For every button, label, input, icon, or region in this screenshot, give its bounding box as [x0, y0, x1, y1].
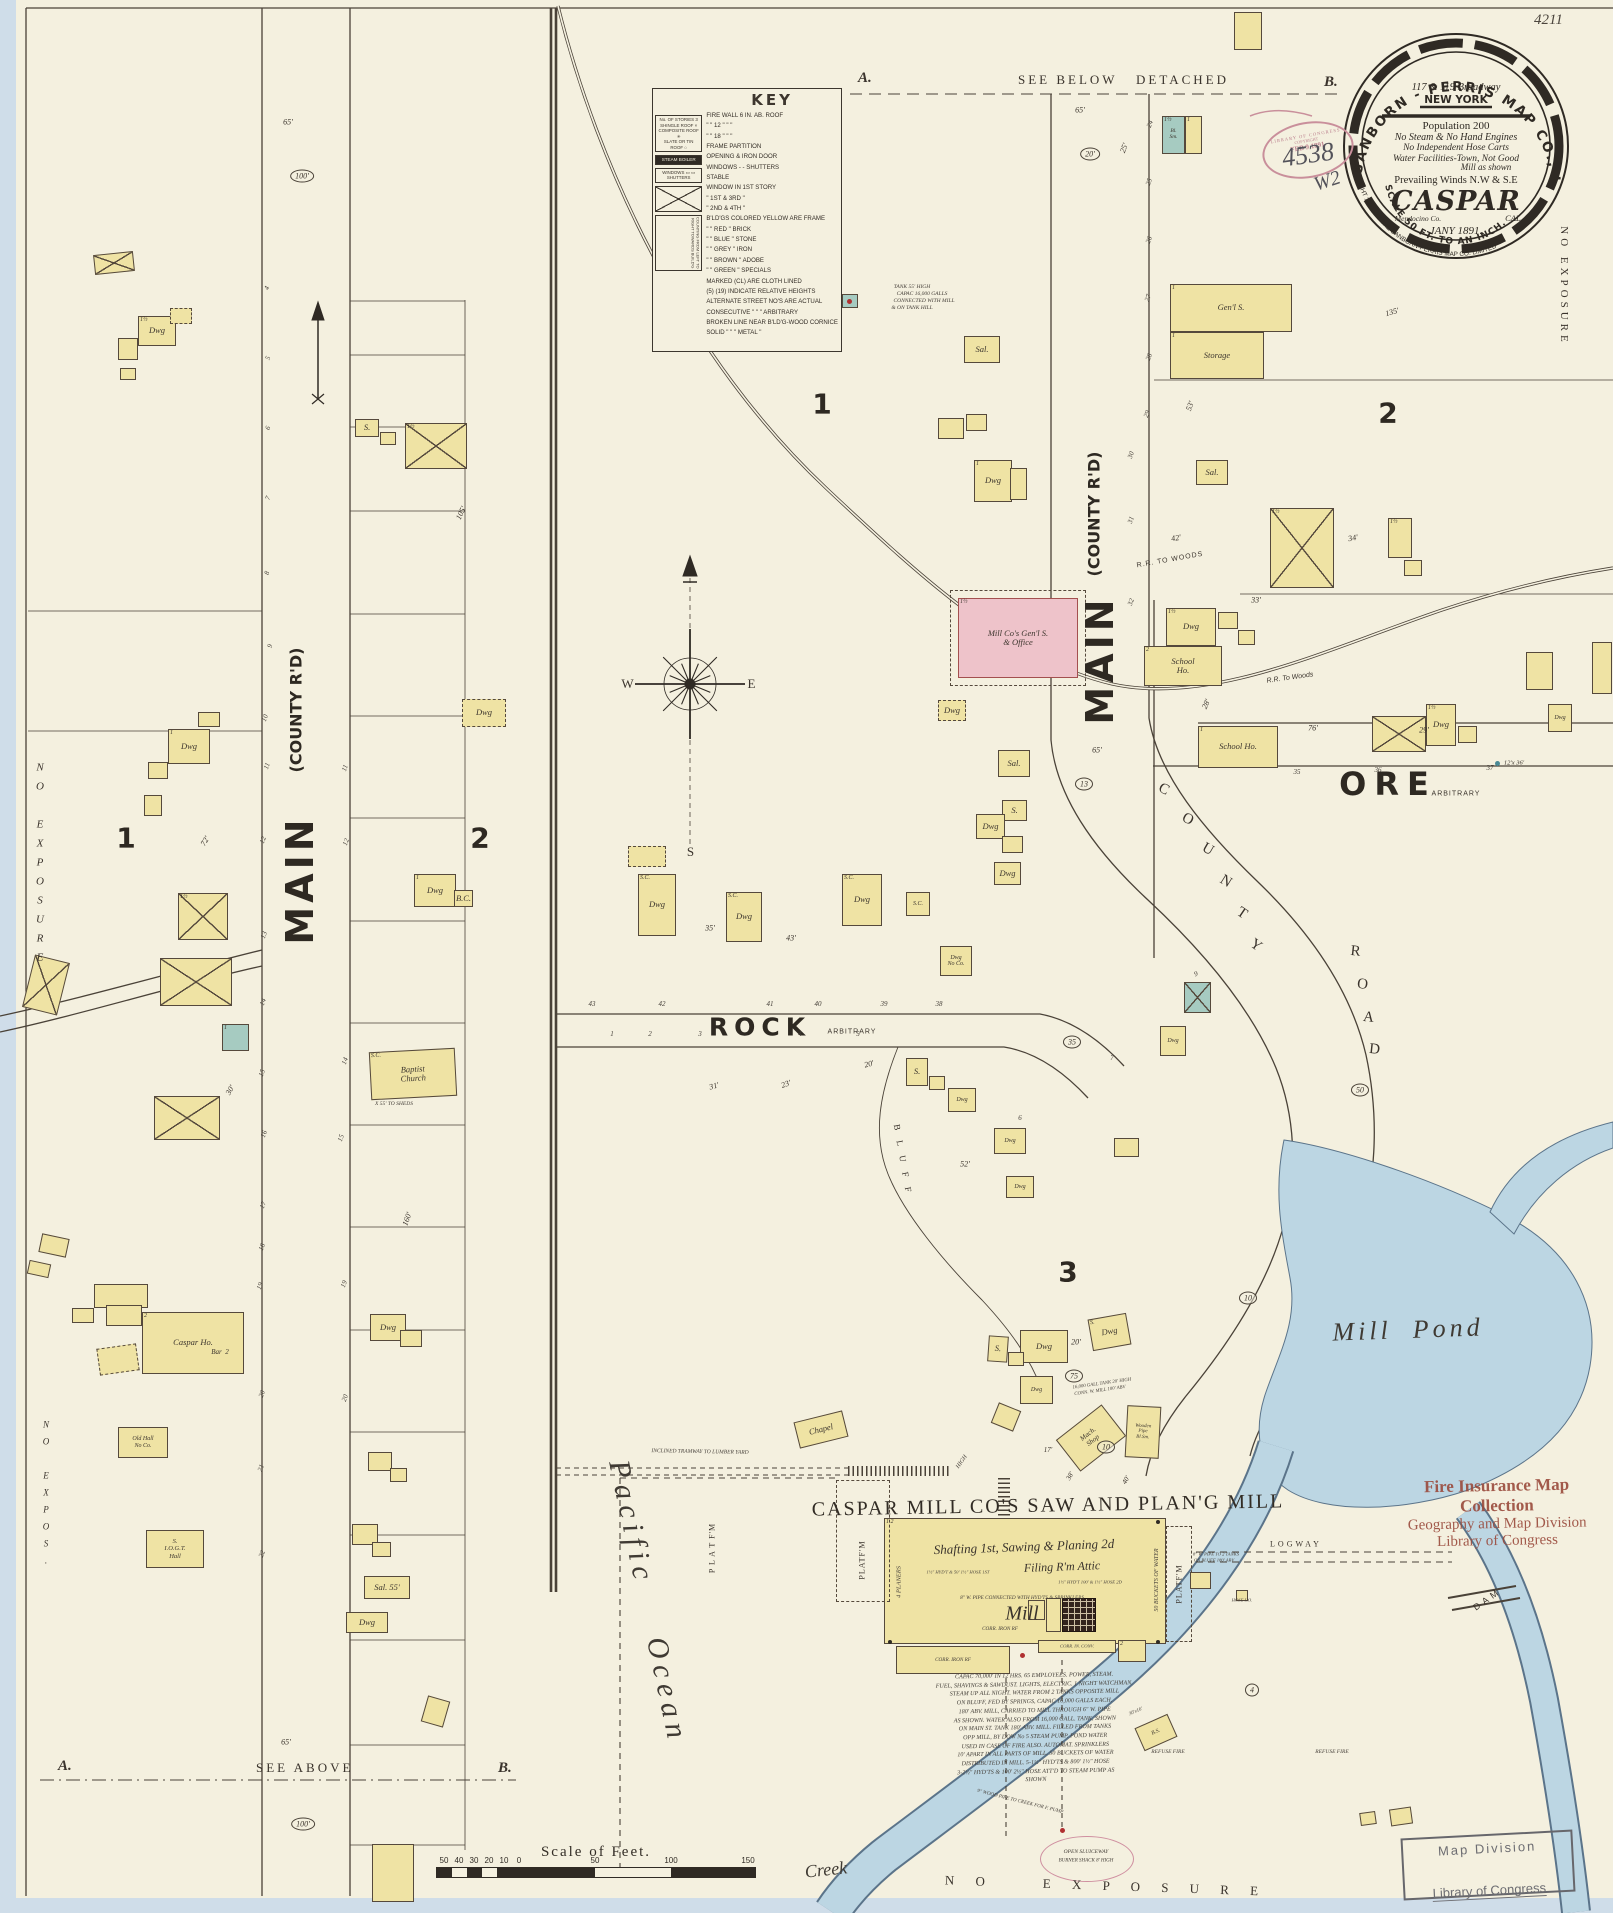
key-row: WINDOWS - - SHUTTERS: [706, 163, 838, 173]
key-row: B'LD'GS COLORED YELLOW ARE FRAME: [706, 214, 838, 224]
key-row: OPENING & IRON DOOR: [706, 152, 838, 162]
map-label: Mill: [1005, 1603, 1038, 1626]
building: 2: [1118, 1640, 1146, 1662]
building: Dwg: [976, 814, 1005, 839]
red-stamp-line1: Fire Insurance Map Collection: [1391, 1474, 1602, 1518]
lot-number: 3: [698, 1030, 702, 1038]
building: S.: [987, 1335, 1009, 1362]
map-label: ORE: [1339, 765, 1437, 803]
stamp-town: CASPAR: [1391, 186, 1521, 217]
key-row: ALTERNATE STREET NO'S ARE ACTUAL: [706, 297, 838, 307]
sanborn-map-sheet: 4211 No. OF STORIES 3 SHINGLE ROOF × COM…: [0, 0, 1613, 1913]
building: Storage1: [1170, 332, 1264, 379]
hydrant-dot: [1156, 1520, 1160, 1524]
building-label: Dwg: [736, 912, 752, 921]
building: [372, 1844, 414, 1902]
map-label: REFUSE FIRE: [1315, 1749, 1348, 1755]
map-label: ROCK: [709, 1013, 811, 1042]
map-label: (COUNTY R'D): [287, 648, 306, 773]
building-note: 1½: [140, 317, 148, 323]
map-label: 35': [705, 924, 715, 933]
map-label: R: [1350, 943, 1363, 961]
key-row: CONSECUTIVE " " " ARBITRARY: [706, 308, 838, 318]
building: B.C.: [454, 890, 473, 907]
building: Dwg: [938, 700, 966, 721]
building-label: S.C.: [913, 901, 923, 907]
map-label: 17': [1044, 1446, 1053, 1454]
building: [1404, 560, 1422, 576]
key-rows: KEY FIRE WALL 6 IN. AB. ROOF" " 12 " " "…: [703, 89, 841, 351]
key-row: " " RED " BRICK: [706, 225, 838, 235]
building: Gen'l S.1: [1170, 284, 1292, 332]
building: [372, 1542, 391, 1557]
building-label: Caspar Ho.: [173, 1338, 213, 1347]
map-label: HOSE HO.: [1232, 1598, 1253, 1603]
circled-number: 20': [1080, 148, 1100, 161]
lot-number: 39: [881, 1000, 888, 1008]
building: Baptist ChurchS.C.: [369, 1048, 457, 1100]
building-label: Bl. Sm.: [1169, 129, 1177, 141]
building: [1389, 1807, 1413, 1827]
circled-number: 100': [291, 1818, 315, 1831]
map-label: NO EXPOSURE: [34, 762, 46, 971]
north-arrow-icon: [312, 302, 324, 404]
stamp-hose: No Independent Hose Carts: [1402, 143, 1509, 153]
building: [1046, 1598, 1061, 1632]
map-label: 65': [281, 1738, 291, 1747]
building-note: 1½: [1272, 509, 1280, 515]
circled-number: 35: [1063, 1036, 1081, 1049]
building: [1008, 1352, 1024, 1366]
building-label: Dwg: [380, 1323, 396, 1332]
building: [1372, 716, 1426, 752]
see-below-label: SEE BELOW: [1018, 72, 1118, 88]
scale-tick: 50: [591, 1856, 600, 1865]
map-label: PLATF'M: [1175, 1564, 1184, 1603]
map-label: Creek: [804, 1857, 848, 1882]
hydrant-dot: [847, 299, 852, 304]
building: S. I.O.G.T. Hall: [146, 1530, 204, 1568]
stamp-city: NEW YORK: [1424, 94, 1488, 106]
scale-tick: 30: [470, 1856, 479, 1865]
building: Dwg1½: [1426, 704, 1456, 746]
building-label: Chapel: [808, 1422, 834, 1437]
building-label: Dwg: [1167, 1038, 1178, 1044]
building-note: 1: [416, 875, 419, 881]
building-note: S.C.: [728, 893, 738, 899]
building: [400, 1330, 422, 1347]
building-label: Dwg: [985, 476, 1001, 485]
building: DwgS.C.: [638, 874, 676, 936]
building: [1458, 726, 1477, 743]
circled-number: 75: [1065, 1370, 1083, 1383]
key-row: " 1ST & 3RD ": [706, 194, 838, 204]
key-row: " " BROWN " ADOBE: [706, 256, 838, 266]
map-label: 1: [812, 388, 831, 421]
key-legend: No. OF STORIES 3 SHINGLE ROOF × COMPOSIT…: [652, 88, 842, 352]
building-note: S.C.: [371, 1053, 381, 1060]
building-label: S.: [914, 1067, 920, 1076]
building: 1½: [1270, 508, 1334, 588]
see-above-label: SEE ABOVE: [256, 1760, 353, 1776]
lot-number: 5: [856, 1030, 860, 1038]
scale-bar: Scale of Feet. 5040302010050100150: [436, 1844, 756, 1878]
building: [1190, 1572, 1211, 1589]
building-note: 1: [170, 730, 173, 736]
lot-number: 42: [659, 1000, 666, 1008]
building: [144, 795, 162, 816]
map-label: X 55' TO SHEDS: [375, 1101, 413, 1107]
detached-label: DETACHED: [1136, 72, 1229, 88]
building-label: B.C.: [456, 894, 471, 903]
building: Sal.: [998, 750, 1030, 777]
building-note: 1½: [1428, 705, 1436, 711]
building: [1062, 1598, 1096, 1632]
building-note: 2: [1120, 1641, 1123, 1647]
building-label: School Ho.: [1219, 742, 1257, 751]
circled-number: 100': [290, 170, 314, 183]
building-note: 1½: [1168, 609, 1176, 615]
building-label: Dwg: [944, 706, 960, 715]
key-row: (5) (19) INDICATE RELATIVE HEIGHTS: [706, 287, 838, 297]
building-note: 1: [224, 1025, 227, 1031]
stamp-county: Mendocino Co.: [1394, 214, 1441, 223]
map-label: 3: [1058, 1256, 1077, 1289]
map-label: E: [748, 676, 757, 692]
hydrant-dot: [1156, 1640, 1160, 1644]
building: [1002, 836, 1023, 853]
building-note: 1½: [407, 424, 415, 430]
building-label: Old Hall No Co.: [132, 1436, 153, 1449]
building-label: Dwg No Co.: [947, 955, 964, 968]
scale-bar-ruler: 5040302010050100150: [436, 1867, 756, 1878]
building: Dwg: [948, 1088, 976, 1112]
building-label: Dwg: [854, 895, 870, 904]
building: [1234, 12, 1262, 50]
map-label: 76': [1308, 724, 1318, 733]
building-note: 1½: [960, 599, 968, 605]
section-marker-a-top: A.: [858, 70, 872, 87]
key-row: " " 18 " " ": [706, 132, 838, 142]
map-label: 33': [1251, 596, 1261, 605]
map-label: 65': [1092, 746, 1102, 755]
building: DwgS.C.: [726, 892, 762, 942]
map-label: 43': [786, 934, 796, 943]
building: Bl. Sm.1½: [1162, 116, 1185, 154]
building-note: 1½: [1390, 519, 1398, 525]
building: S.C.: [906, 892, 930, 916]
building-label: Sal. 55': [374, 1583, 399, 1592]
building: S.: [1002, 800, 1027, 821]
key-row: FRAME PARTITION: [706, 142, 838, 152]
building: Dwg1: [168, 729, 210, 764]
map-label: MAIN: [278, 815, 322, 944]
stamp-date: JANY 1891.: [1430, 225, 1483, 237]
key-cell-stable: [655, 186, 702, 212]
map-label: 20': [1071, 1338, 1081, 1347]
map-label: P L A T F'M: [708, 1523, 717, 1573]
building-label: Dwg: [476, 708, 492, 717]
building: [1218, 612, 1238, 629]
building: [93, 251, 135, 275]
key-row: " " GREY " IRON: [706, 245, 838, 255]
map-label: Filing R'm Attic: [1024, 1558, 1101, 1576]
map-label: A: [1362, 1009, 1376, 1027]
map-label: LOGWAY: [1270, 1540, 1322, 1549]
building-label: S.: [364, 423, 370, 432]
building-label: Dwg: [1031, 1387, 1042, 1393]
key-row: " " BLUE " STONE: [706, 235, 838, 245]
building: Dwg1: [414, 874, 456, 907]
circled-number: 13: [1075, 778, 1093, 791]
map-label: 34': [1347, 533, 1358, 544]
building: Sal.: [964, 336, 1000, 363]
building-note: S.: [1090, 1319, 1095, 1326]
building: [628, 846, 666, 867]
building: [160, 958, 232, 1006]
map-label: ARBITRARY: [828, 1029, 877, 1036]
building-label: Sal.: [1206, 468, 1219, 477]
building: Dwg: [1548, 704, 1572, 732]
building-label: Dwg: [1183, 622, 1199, 631]
map-label: 52': [960, 1160, 970, 1169]
building-label: Dwg: [1014, 1184, 1025, 1190]
circled-number: 10: [1239, 1292, 1257, 1305]
section-marker-a-bottom: A.: [58, 1758, 72, 1775]
building: Mill Co's Gen'l S. & Office1½: [958, 598, 1078, 678]
building-label: Dwg: [982, 822, 998, 831]
map-label: 1½" HYD'T & 50' 1½" HOSE 1ST: [927, 1570, 990, 1575]
building: 1½: [1388, 518, 1412, 558]
map-label: 8" W. PIPE TO 2 TANKS: [1193, 1552, 1239, 1557]
building: [120, 368, 136, 380]
building: [1184, 982, 1211, 1013]
building: [118, 338, 138, 360]
building: School Ho.1: [1198, 726, 1278, 768]
hydrant-dot: [1495, 761, 1500, 766]
map-label: & ON TANK HILL: [891, 305, 932, 311]
scale-tick: 10: [500, 1856, 509, 1865]
map-label: ON BLUFF 180' ABV: [1194, 1558, 1234, 1563]
building: Wooden Pipe Bl.Sm.: [1125, 1405, 1162, 1459]
building: DwgS.: [1088, 1313, 1132, 1351]
key-cell-counting: COUNTING FROM LEFT TO RIGHT TOWARDS BUIL…: [655, 215, 702, 271]
key-cell-stories: No. OF STORIES 3 SHINGLE ROOF × COMPOSIT…: [655, 115, 702, 152]
building-label: Storage: [1204, 351, 1230, 360]
building-label: Dwg: [1554, 715, 1565, 721]
building-label: Sal.: [1008, 759, 1021, 768]
building: Dwg: [1006, 1176, 1034, 1198]
building: Dwg: [994, 1128, 1026, 1154]
map-label: OPEN SLUICEWAY: [1064, 1849, 1109, 1855]
key-row: FIRE WALL 6 IN. AB. ROOF: [706, 111, 838, 121]
building: S.: [355, 419, 379, 437]
lot-number: 35: [1294, 768, 1301, 776]
map-label: (COUNTY R'D): [1085, 452, 1104, 577]
building-label: S.: [1011, 806, 1017, 815]
map-label: 65': [1075, 106, 1085, 115]
building: [390, 1468, 407, 1482]
building: Dwg No Co.: [940, 946, 972, 976]
map-label: NO EXPOS.: [41, 1420, 51, 1573]
key-row: BROKEN LINE NEAR B'LD'G-WOOD CORNICE: [706, 318, 838, 328]
map-label: Mill Pond: [1332, 1312, 1484, 1347]
scale-tick: 150: [741, 1856, 754, 1865]
key-row: " " 12 " " ": [706, 121, 838, 131]
map-label: 4 PLANERS: [896, 1566, 903, 1598]
building-label: Dwg: [649, 900, 665, 909]
map-label: CORR. IN. CONV.: [1060, 1644, 1094, 1649]
building: Dwg: [1160, 1026, 1186, 1056]
lot-number: 4: [798, 1030, 802, 1038]
building: [72, 1308, 94, 1323]
building: Old Hall No Co.: [118, 1427, 168, 1458]
building: Dwg: [1020, 1376, 1053, 1404]
map-label: CORR. IRON RF: [935, 1657, 971, 1663]
lot-number: 36: [1375, 766, 1382, 774]
stamp-address: 117 & 119 Broadway: [1412, 82, 1501, 93]
lot-number: 7: [1110, 1054, 1114, 1062]
scale-tick: 100: [664, 1856, 677, 1865]
building: 1½: [178, 893, 228, 940]
building: [1010, 468, 1027, 500]
map-label: ARBITRARY: [1432, 791, 1481, 798]
building-label: Dwg: [1036, 1342, 1052, 1351]
building: [1526, 652, 1553, 690]
building: [938, 418, 964, 439]
building: [380, 432, 396, 445]
building-note: S.C.: [844, 875, 854, 881]
map-label: 2: [470, 822, 489, 855]
building: DwgS.C.: [842, 874, 882, 926]
building-note: 1: [1187, 117, 1190, 123]
map-label: CONNECTED WITH MILL: [893, 298, 954, 304]
lot-number: 43: [589, 1000, 596, 1008]
building: [170, 308, 192, 324]
lot-number: 40: [815, 1000, 822, 1008]
building-label: Dwg: [999, 869, 1015, 878]
stamp-water2: Mill as shown: [1460, 162, 1512, 172]
scale-tick: 20: [485, 1856, 494, 1865]
map-label: CAPAC 16,000 GALLS: [897, 291, 948, 297]
building: [1114, 1138, 1139, 1157]
key-title: KEY: [706, 91, 838, 109]
building: [1359, 1811, 1377, 1826]
building-label: Dwg: [1004, 1138, 1015, 1144]
stamp-engines: No Steam & No Hand Engines: [1394, 132, 1518, 143]
section-marker-b-bottom: B.: [498, 1760, 512, 1777]
box-stamp-line1: Map Division: [1403, 1837, 1572, 1861]
key-row: MARKED (CL) ARE CLOTH LINED: [706, 277, 838, 287]
key-row: " " GREEN " SPECIALS: [706, 266, 838, 276]
key-symbol-column: No. OF STORIES 3 SHINGLE ROOF × COMPOSIT…: [653, 89, 703, 351]
building: [154, 1096, 220, 1140]
scale-tick: 0: [517, 1856, 521, 1865]
key-row: SOLID " " " METAL ": [706, 328, 838, 338]
building: [966, 414, 987, 431]
building: [198, 712, 220, 727]
hydrant-dot: [1020, 1653, 1025, 1658]
key-row: WINDOW IN 1ST STORY: [706, 183, 838, 193]
building: [1592, 642, 1612, 694]
building: Dwg1: [974, 460, 1012, 502]
building: Dwg: [462, 699, 506, 727]
map-label: 65': [283, 118, 293, 127]
map-label: 2: [1378, 397, 1397, 430]
map-label: D: [1368, 1041, 1382, 1059]
building: School Ho.2: [1144, 646, 1222, 686]
publisher-stamp: SANBORN - PERRIS MAP CO., LIMITED COPYRI…: [1318, 26, 1594, 282]
building: Dwg: [346, 1612, 388, 1633]
loc-box-stamp: Map Division Library of Congress: [1400, 1830, 1575, 1901]
map-label: 29': [1419, 726, 1429, 735]
lot-number: 37: [1487, 764, 1494, 772]
lot-number: 38: [936, 1000, 943, 1008]
building-note: 2: [144, 1313, 147, 1319]
building: 1: [1185, 116, 1202, 154]
circled-number: 50: [1351, 1084, 1369, 1097]
building: [1238, 630, 1255, 645]
building: [96, 1343, 139, 1375]
loc-red-stamp: Fire Insurance Map Collection Geography …: [1391, 1474, 1602, 1552]
key-row: STABLE: [706, 173, 838, 183]
building-label: Dwg: [1101, 1326, 1118, 1338]
circled-number: 4: [1245, 1684, 1259, 1697]
lot-number: 6: [1018, 1114, 1022, 1122]
mill-description-note: CAPAC 70,000' IN 12 HRS. 65 EMPLOYEES. P…: [895, 1670, 1175, 1788]
lot-number: 2: [648, 1030, 652, 1038]
scale-tick: 50: [440, 1856, 449, 1865]
building-note: 1½: [1164, 117, 1172, 123]
building: [106, 1305, 142, 1326]
building: Caspar Ho.2: [142, 1312, 244, 1374]
map-label: O: [1356, 976, 1370, 994]
map-label: 50 BUCKETS OF WATER: [1154, 1548, 1160, 1611]
hydrant-dot: [1060, 1828, 1065, 1833]
building: Dwg: [1020, 1330, 1068, 1363]
map-label: 1½" HYD'T 100' & 1½" HOSE 2D: [1058, 1580, 1122, 1585]
map-label: 8" W. PIPE CONNECTED WITH HYD'TS & SPRIN…: [960, 1595, 1084, 1601]
building-label: Dwg: [956, 1097, 967, 1103]
map-label: Bar 2: [211, 1348, 229, 1356]
building-note: 1: [1200, 727, 1203, 733]
stamp-winds: Prevailing Winds N.W & S.E: [1394, 175, 1517, 186]
building: 1½: [405, 423, 467, 469]
key-cell-boiler: STEAM BOILER: [655, 155, 702, 165]
building-label: Dwg: [1433, 720, 1449, 729]
map-label: 12'x 36': [1504, 760, 1524, 767]
map-label: CORR. IRON RF: [982, 1626, 1018, 1632]
building-label: Baptist Church: [400, 1064, 426, 1084]
building-label: School Ho.: [1171, 657, 1194, 675]
building-label: Mill Co's Gen'l S. & Office: [988, 629, 1048, 647]
compass-rose: [635, 556, 745, 739]
map-label: W: [621, 676, 634, 692]
map-label: BURNER SHACK 8' HIGH: [1059, 1859, 1114, 1864]
circled-number: 10: [1097, 1441, 1115, 1454]
building-label: Sal.: [976, 345, 989, 354]
building-label: Dwg: [181, 742, 197, 751]
map-label: PLATF'M: [858, 1540, 867, 1579]
scale-tick: 40: [455, 1856, 464, 1865]
stamp-population: Population 200: [1423, 120, 1490, 132]
building: [148, 762, 168, 779]
map-label: TANK 55' HIGH: [894, 284, 931, 290]
map-label: 1: [116, 822, 135, 855]
map-label: S: [687, 844, 695, 860]
map-label: 42': [1170, 533, 1181, 544]
hydrant-dot: [888, 1640, 892, 1644]
